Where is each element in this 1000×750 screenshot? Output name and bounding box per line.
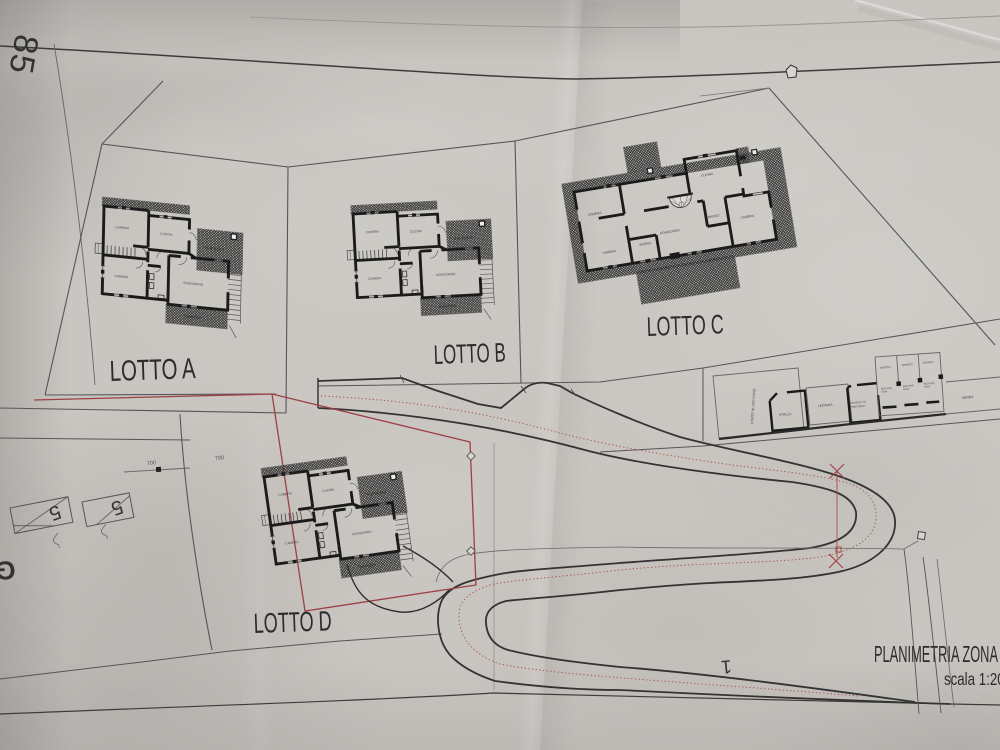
svg-text:CANI: CANI	[924, 385, 930, 388]
svg-text:PLANIMETRIA ZONA: PLANIMETRIA ZONA	[874, 641, 998, 667]
svg-text:85: 85	[1, 32, 45, 78]
svg-text:APERTO: APERTO	[880, 365, 891, 370]
svg-text:700: 700	[147, 460, 157, 467]
svg-text:G: G	[0, 555, 16, 586]
svg-text:LOTTO D: LOTTO D	[253, 605, 332, 639]
svg-text:CANI: CANI	[881, 390, 887, 393]
svg-text:APERTO: APERTO	[901, 362, 912, 367]
svg-text:scala 1:200: scala 1:200	[944, 669, 1000, 689]
svg-text:LOTTO C: LOTTO C	[646, 309, 724, 342]
svg-text:LOTTO B: LOTTO B	[433, 338, 506, 370]
svg-text:LOTTO A: LOTTO A	[109, 353, 197, 388]
svg-text:1: 1	[720, 655, 733, 677]
svg-text:APERTO: APERTO	[922, 360, 933, 365]
svg-text:CANI: CANI	[903, 388, 909, 391]
svg-text:700: 700	[215, 455, 225, 462]
